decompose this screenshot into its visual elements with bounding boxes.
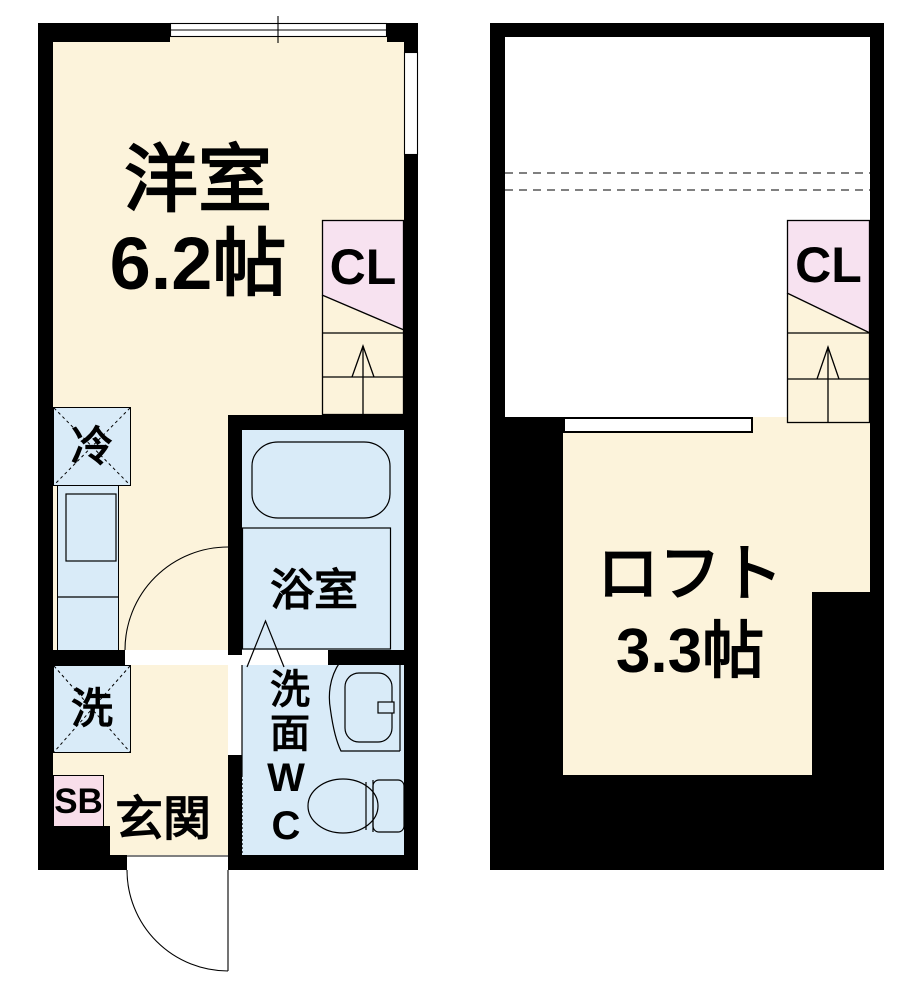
bathroom-label: 浴室: [244, 569, 384, 613]
bathtub: [252, 442, 390, 518]
door-swings: [125, 547, 228, 971]
refrigerator-label: 冷: [53, 426, 131, 468]
loft-room-name: ロフト: [570, 536, 810, 613]
washer-label: 洗: [53, 688, 131, 730]
entrance-label: 玄関: [103, 796, 223, 844]
main-room-name: 洋室: [88, 138, 308, 222]
sink-faucet: [378, 702, 394, 713]
window-symbols: [170, 16, 418, 155]
bathroom-fixtures: [243, 442, 391, 667]
toilet-bowl: [308, 779, 378, 833]
loft-room-label: ロフト 3.3帖: [570, 536, 810, 690]
closet-ladder-right: [505, 173, 870, 423]
room-door-arc: [125, 547, 228, 650]
bathroom-door-icon: [247, 621, 284, 667]
main-room-size: 6.2帖: [88, 222, 308, 306]
loft-room-size: 3.3帖: [570, 613, 810, 690]
main-room-label: 洋室 6.2帖: [88, 138, 308, 306]
shoe-box-label: SB: [53, 784, 104, 819]
entrance-door-arc: [127, 870, 228, 971]
washroom-label: 洗面WC: [262, 665, 306, 855]
floor-plan-canvas: 洋室 6.2帖 CL 冷 浴室 洗面WC 洗 SB 玄関 ロフト 3.3帖 CL: [0, 0, 915, 995]
kitchen-detail: [57, 494, 118, 597]
kitchen-sink: [66, 494, 116, 561]
loft-closet-label: CL: [787, 240, 870, 290]
closet-label: CL: [322, 242, 404, 292]
side-window-frame: [405, 53, 418, 155]
